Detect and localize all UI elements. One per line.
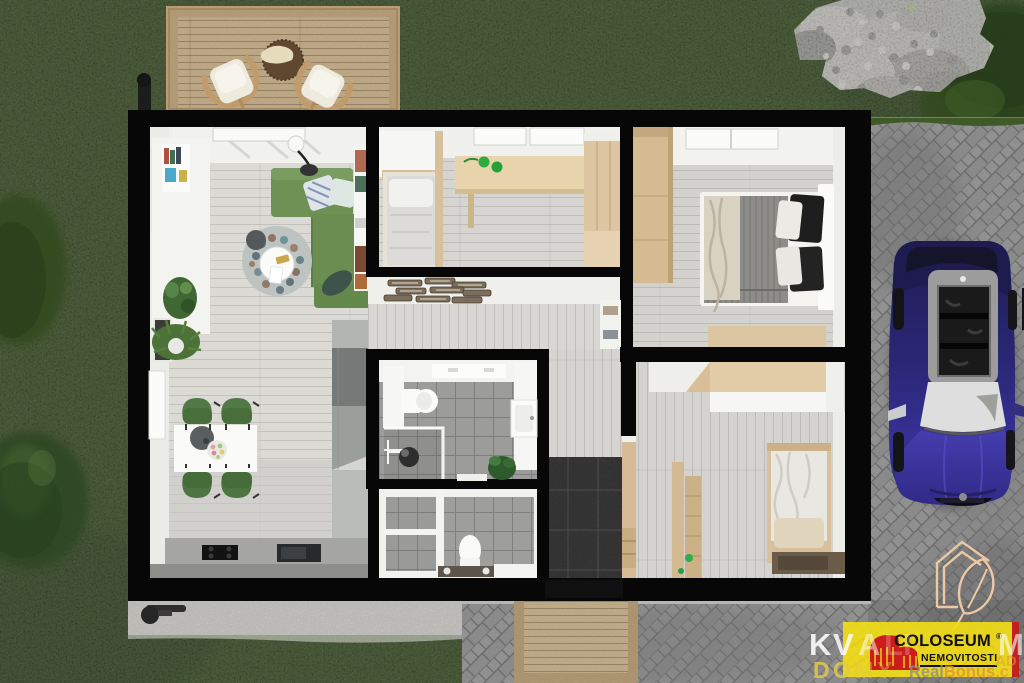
svg-text:D: D	[813, 657, 830, 683]
svg-text:I: I	[903, 627, 912, 662]
svg-text:M: M	[998, 627, 1024, 662]
svg-text:O: O	[833, 657, 851, 683]
svg-text:M: M	[854, 657, 873, 683]
svg-text:Y: Y	[877, 657, 892, 683]
svg-text:RealBonus.c: RealBonus.c	[909, 663, 1009, 681]
